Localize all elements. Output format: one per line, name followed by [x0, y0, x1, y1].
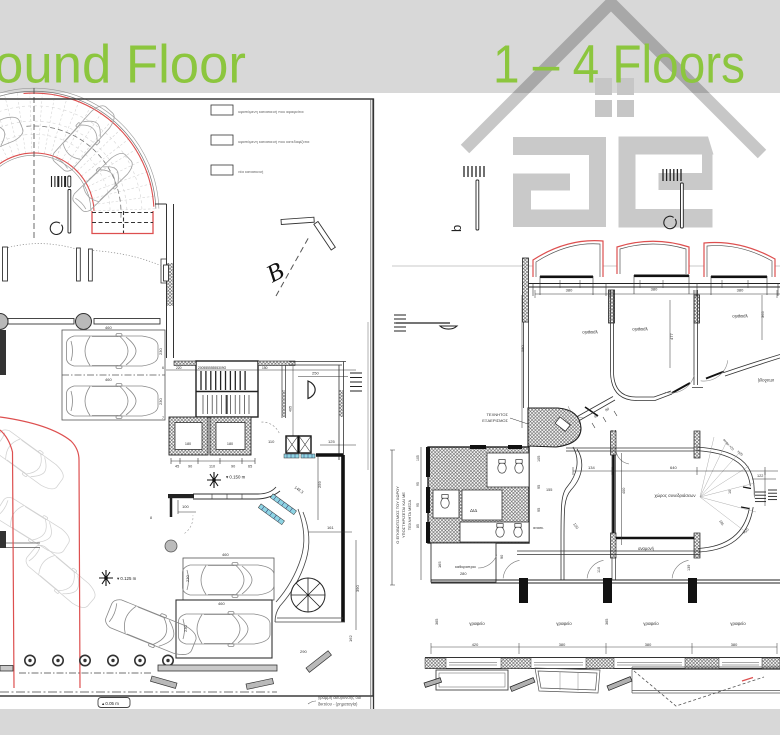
svg-text:γραφείο: γραφείο: [732, 314, 748, 319]
svg-text:γραφείο: γραφείο: [469, 621, 485, 626]
svg-text:20055555555309O: 20055555555309O: [198, 366, 227, 370]
svg-text:290: 290: [300, 649, 307, 654]
svg-text:γραφείο: γραφείο: [582, 330, 598, 335]
svg-text:γραφείο: γραφείο: [643, 621, 659, 626]
svg-text:460: 460: [105, 377, 112, 382]
svg-text:110: 110: [597, 567, 601, 573]
svg-text:καθαριστριο: καθαριστριο: [455, 564, 476, 569]
svg-text:υποδοχή: υποδοχή: [757, 378, 774, 383]
svg-text:230: 230: [158, 398, 163, 405]
svg-text:γραφείο: γραφείο: [556, 621, 572, 626]
svg-text:640: 640: [670, 465, 677, 470]
svg-text:ΕΞΑΕΡΙΣΜΟΣ: ΕΞΑΕΡΙΣΜΟΣ: [482, 418, 508, 423]
svg-text:180: 180: [185, 442, 191, 446]
svg-text:460: 460: [218, 601, 225, 606]
svg-text:γραφείο: γραφείο: [632, 327, 648, 332]
svg-text:460: 460: [222, 552, 229, 557]
svg-text:365: 365: [760, 311, 765, 318]
svg-text:380: 380: [651, 287, 658, 292]
svg-text:110: 110: [209, 465, 215, 469]
svg-text:420: 420: [472, 642, 479, 647]
svg-text:7: 7: [162, 416, 164, 420]
svg-text:230: 230: [185, 575, 190, 582]
svg-text:1 – 4 Floors: 1 – 4 Floors: [493, 35, 745, 95]
svg-text:υφιστάμενη κατασκευή που κατεδ: υφιστάμενη κατασκευή που κατεδαφίζεται: [238, 139, 310, 144]
svg-text:▾ 0.125 m: ▾ 0.125 m: [117, 576, 137, 581]
svg-text:380: 380: [737, 288, 744, 293]
svg-text:155: 155: [546, 488, 552, 492]
svg-text:460: 460: [105, 325, 112, 330]
svg-text:90: 90: [188, 465, 192, 469]
svg-text:380: 380: [566, 288, 573, 293]
svg-text:150: 150: [262, 366, 268, 370]
svg-text:ound Floor: ound Floor: [0, 35, 246, 95]
svg-text:10: 10: [728, 490, 732, 494]
svg-text:ΤΕΧΝΗΤΟΣ: ΤΕΧΝΗΤΟΣ: [486, 412, 508, 417]
svg-text:105: 105: [416, 455, 420, 461]
svg-text:220: 220: [176, 366, 182, 370]
svg-text:134: 134: [588, 465, 595, 470]
svg-text:χώρος συνεδριάσεων: χώρος συνεδριάσεων: [654, 493, 695, 498]
svg-text:ΤΕΧΝΗΤΑ ΜΕΣΑ: ΤΕΧΝΗΤΑ ΜΕΣΑ: [407, 499, 412, 530]
svg-text:380: 380: [645, 642, 652, 647]
svg-text:125: 125: [328, 439, 335, 444]
svg-text:580: 580: [520, 345, 525, 352]
svg-text:405: 405: [289, 406, 293, 412]
svg-text:6: 6: [162, 366, 164, 370]
svg-text:400: 400: [622, 488, 626, 494]
svg-text:45: 45: [175, 465, 179, 469]
svg-text:280: 280: [460, 571, 467, 576]
svg-text:230: 230: [183, 625, 188, 632]
svg-text:250: 250: [312, 371, 319, 376]
svg-text:122: 122: [757, 474, 763, 478]
svg-text:477: 477: [669, 333, 674, 340]
svg-text:υφιστάμενη κατασκευή που αφαιρ: υφιστάμενη κατασκευή που αφαιρείται: [238, 109, 304, 114]
svg-text:230: 230: [158, 348, 163, 355]
svg-text:▴ 0.05 m: ▴ 0.05 m: [102, 701, 119, 706]
svg-text:161: 161: [327, 525, 334, 530]
svg-text:8: 8: [150, 516, 152, 520]
svg-text:105: 105: [537, 456, 541, 462]
svg-text:100: 100: [182, 504, 189, 509]
svg-text:162: 162: [348, 635, 353, 642]
svg-text:ΥΠΟΣΤΗΡΙΖΕΤΑΙ ΚΑΙ ΜΕ: ΥΠΟΣΤΗΡΙΖΕΤΑΙ ΚΑΙ ΜΕ: [401, 492, 406, 538]
svg-text:▾ 0.150 m: ▾ 0.150 m: [226, 475, 246, 480]
svg-text:95: 95: [416, 503, 420, 507]
svg-text:γραφείο: γραφείο: [730, 621, 746, 626]
svg-text:ΔΙΔ: ΔΙΔ: [470, 508, 477, 513]
svg-text:85: 85: [416, 524, 420, 528]
svg-text:365: 365: [605, 619, 609, 625]
svg-text:Ο ΕΓΚΙΒΩΤΙΣΜΟΣ ΤΟΥ ΧΩΡΟΥ: Ο ΕΓΚΙΒΩΤΙΣΜΟΣ ΤΟΥ ΧΩΡΟΥ: [395, 486, 400, 544]
svg-text:139: 139: [687, 565, 691, 571]
svg-text:90: 90: [231, 465, 235, 469]
svg-text:380: 380: [559, 642, 566, 647]
svg-text:ανασκ.: ανασκ.: [533, 526, 544, 530]
svg-text:νέα κατασκευή: νέα κατασκευή: [238, 169, 263, 174]
svg-text:95: 95: [537, 485, 541, 489]
svg-text:110: 110: [268, 439, 275, 444]
svg-text:380: 380: [731, 642, 738, 647]
svg-text:65: 65: [248, 465, 252, 469]
svg-text:180: 180: [227, 442, 233, 446]
svg-text:αναμονή: αναμονή: [638, 546, 654, 551]
svg-text:365: 365: [435, 619, 439, 625]
svg-text:95: 95: [537, 508, 541, 512]
svg-text:δικτύου - (ρηματαγία): δικτύου - (ρηματαγία): [318, 702, 358, 707]
svg-text:b: b: [449, 225, 464, 232]
svg-text:165: 165: [437, 562, 442, 569]
svg-text:95: 95: [416, 482, 420, 486]
